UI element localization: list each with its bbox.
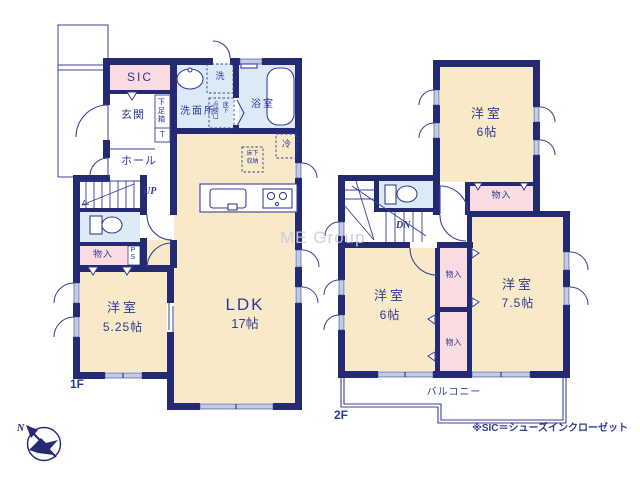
sliding-door [169, 303, 173, 333]
bedroom-75 [472, 217, 563, 371]
label-underfloor-bottom: 収納 [242, 159, 263, 165]
label-getabako: 下足箱 [157, 98, 165, 130]
room-label-ldk: LDK [200, 296, 290, 314]
room-label-bath: 浴室 [239, 100, 287, 111]
kitchen-counter [200, 184, 297, 212]
balcony-rail [341, 378, 566, 423]
label-washer: 洗 [207, 72, 233, 81]
label-balcony: バルコニー [408, 388, 500, 399]
label-fridge: 冷 [276, 140, 297, 149]
label-hatch-yukashita: 床下 [221, 101, 227, 127]
bath-window [240, 59, 262, 64]
ldk-room [174, 134, 295, 403]
room-size-2f-top: 6帖 [455, 126, 519, 139]
label-up: UP [143, 187, 156, 198]
room-label-youshitsu525: 洋室 [85, 301, 161, 315]
label-closet-2f-top: 物入 [470, 191, 533, 200]
room-label-2f-top: 洋室 [455, 107, 519, 121]
stairs-1f [80, 181, 140, 208]
watermark: ME Group [280, 229, 365, 247]
floorplan-canvas: N SIC 玄関 下足箱 T ホール 洗面所 洗 床下 点検口 浴室 冷 床下 … [0, 0, 640, 480]
room-size-youshitsu525: 5.25帖 [85, 321, 161, 334]
entrance-door-arc [76, 105, 108, 137]
toilet-1f [90, 216, 122, 234]
room-size-2f-right: 7.5帖 [480, 297, 556, 310]
sic-footnote: ※SIC＝シューズインクローゼット [450, 424, 628, 435]
room-label-2f-right: 洋室 [480, 278, 556, 292]
label-getabako-t: T [155, 131, 170, 139]
compass-icon: N [16, 423, 61, 461]
label-underfloor-top: 床下 [242, 151, 263, 157]
room-label-sic: SIC [110, 71, 170, 84]
room-label-hall: ホール [108, 156, 170, 168]
label-closet-mid-upper: 物入 [438, 271, 469, 279]
room-label-genkan: 玄関 [108, 110, 158, 122]
room-size-ldk: 17帖 [200, 317, 290, 331]
label-closet-mid-lower: 物入 [438, 339, 469, 347]
room-label-2f-left: 洋室 [355, 289, 425, 303]
compass-north-label: N [16, 423, 25, 434]
label-dn: DN [396, 221, 410, 232]
label-hatch-tenkenko: 点検口 [211, 101, 217, 127]
compass-bird [29, 438, 58, 455]
floor2-room-fills [345, 67, 563, 371]
label-ps: PS [129, 247, 136, 265]
room-size-2f-left: 6帖 [355, 309, 425, 322]
floor2-label: 2F [334, 409, 348, 422]
floor1-label: 1F [70, 378, 84, 391]
label-monoire-1f: 物入 [80, 250, 126, 259]
entrance-porch [58, 25, 108, 177]
